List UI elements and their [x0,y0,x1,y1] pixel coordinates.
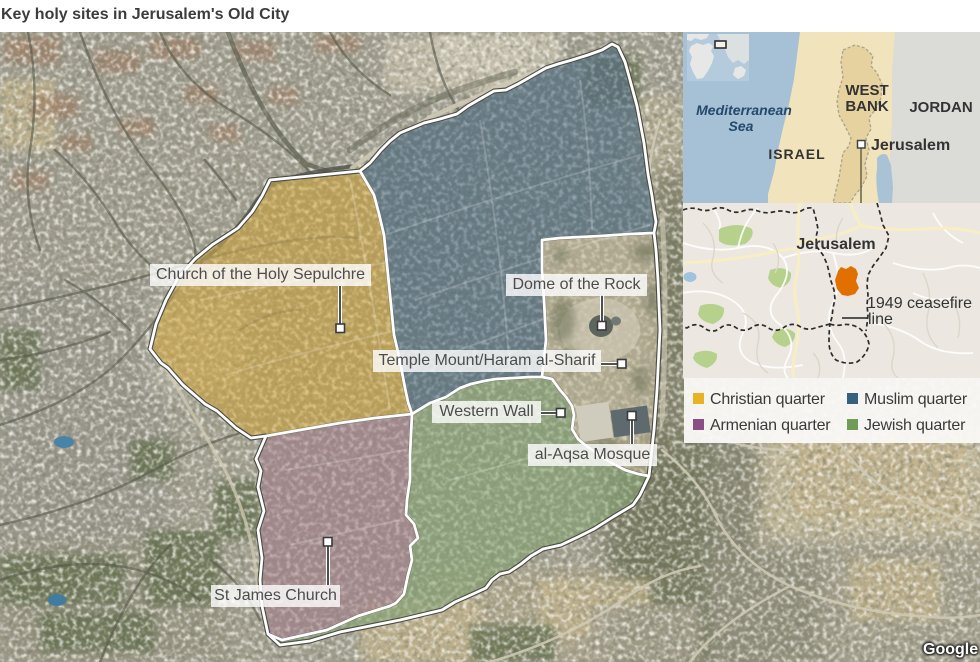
svg-text:Mediterranean: Mediterranean [696,102,792,118]
svg-text:WEST: WEST [845,82,888,99]
svg-text:Jerusalem: Jerusalem [871,137,950,154]
svg-text:Sea: Sea [729,118,754,134]
svg-text:JORDAN: JORDAN [909,99,972,116]
svg-text:Jerusalem: Jerusalem [796,236,875,253]
svg-text:line: line [868,311,893,328]
svg-text:BANK: BANK [845,98,888,115]
svg-text:1949 ceasefire: 1949 ceasefire [867,295,972,312]
svg-text:ISRAEL: ISRAEL [768,146,825,162]
